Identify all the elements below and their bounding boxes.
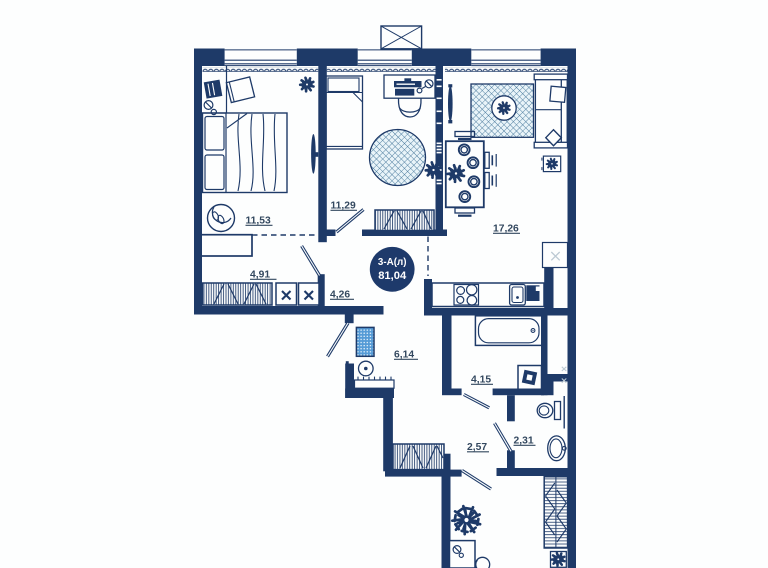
svg-text:81,04: 81,04 [378,270,407,282]
svg-text:3-А(л): 3-А(л) [378,257,407,268]
